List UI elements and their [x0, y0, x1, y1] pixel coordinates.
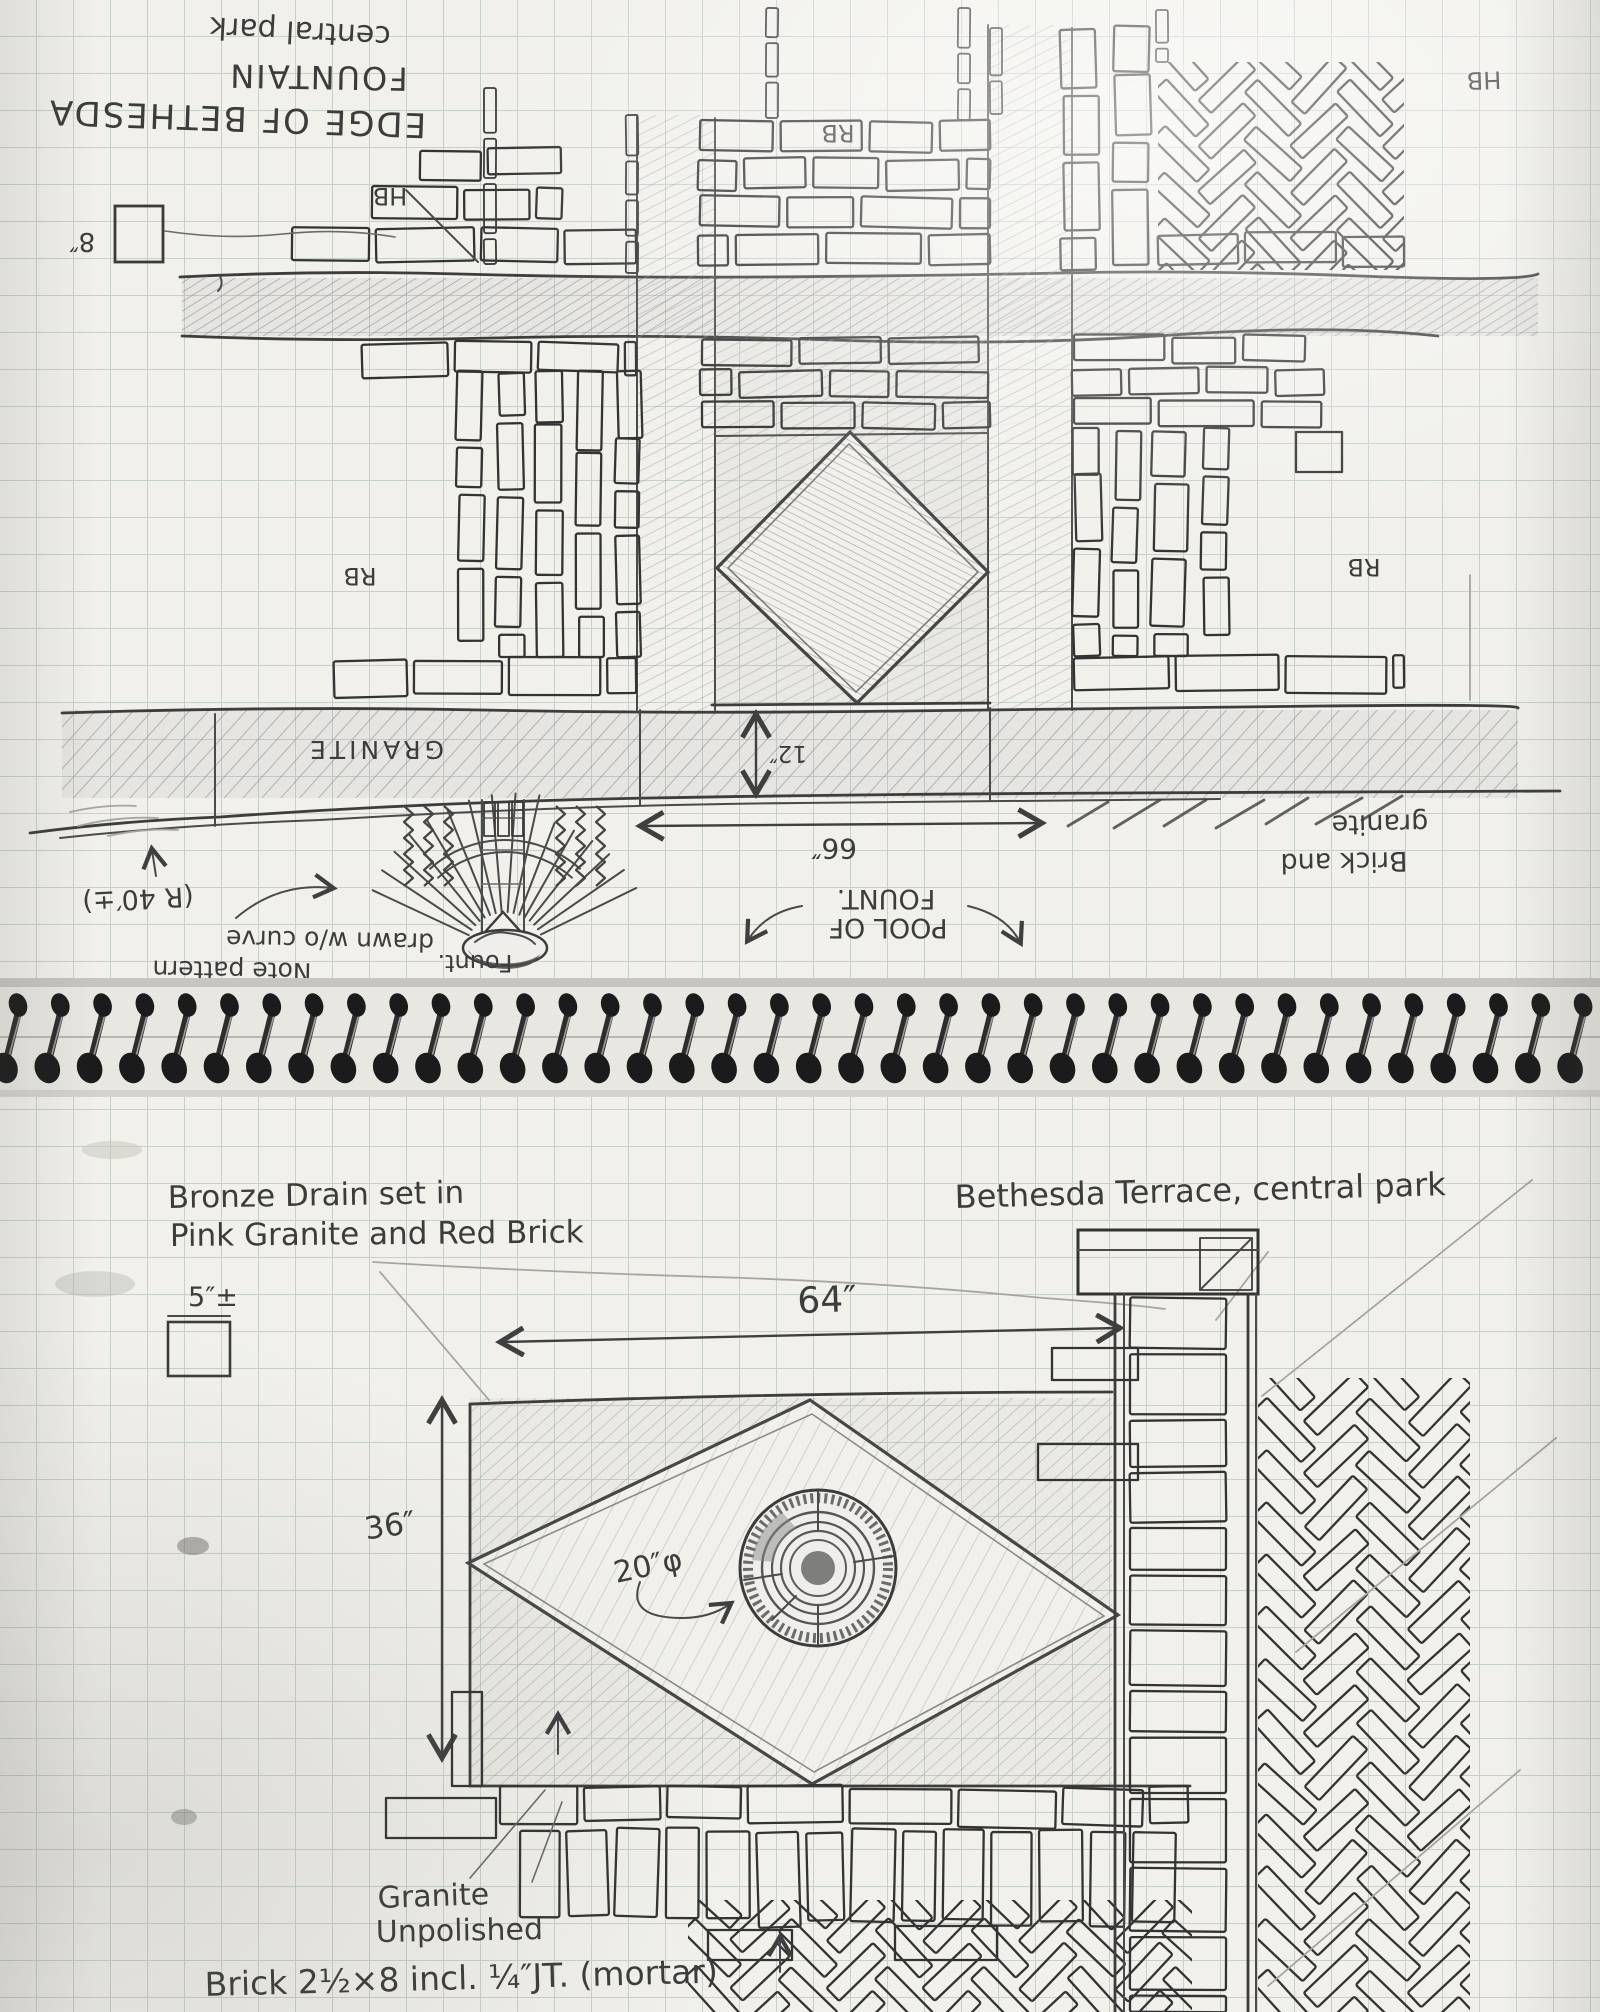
brick — [1199, 195, 1256, 252]
brick — [1460, 1450, 1524, 1513]
brick — [1198, 103, 1255, 159]
label-granite-note-2: Unpolished — [376, 1912, 544, 1950]
arrow-note-pattern — [236, 887, 332, 918]
cross-brick-1 — [1052, 1348, 1138, 1380]
construction-diagonals — [1262, 1180, 1556, 1986]
brick — [1162, 1920, 1222, 1977]
brick — [1513, 1683, 1575, 1748]
ref-square-5in — [168, 1322, 230, 1376]
brick — [1253, 1398, 1316, 1463]
brick — [666, 1828, 699, 1919]
smudge — [177, 1537, 209, 1555]
label-pool-of: POOL OF — [828, 912, 947, 943]
brick — [1512, 1528, 1576, 1592]
brick — [1113, 636, 1138, 656]
zigzag-line — [576, 806, 585, 886]
brick — [1337, 33, 1393, 90]
brick — [1113, 570, 1138, 627]
brick — [766, 43, 778, 77]
granite-strip-right — [988, 25, 1072, 710]
zigzag-line — [556, 806, 565, 886]
brick — [1513, 1943, 1575, 2008]
brick — [1130, 1799, 1226, 1862]
bottom-sketch: Bronze Drain set in Pink Granite and Red… — [55, 1141, 1577, 2012]
brick — [1512, 1736, 1575, 1800]
brick — [1130, 1528, 1226, 1570]
granite-strip-left — [637, 115, 715, 710]
fan-spoke — [410, 835, 480, 921]
bottom-page-edge — [0, 1090, 1600, 1097]
bronze-drain — [740, 1490, 896, 1646]
brick — [1513, 1371, 1575, 1436]
leader-title-diag — [380, 1272, 489, 1400]
brick — [1356, 1451, 1421, 1514]
brick — [1304, 1425, 1369, 1488]
brick — [1113, 143, 1149, 182]
brick — [1151, 431, 1186, 476]
brickfield-stack-left — [455, 371, 642, 658]
sketch-canvas: EDGE OF BETHESDA FOUNTAIN central park 8… — [0, 0, 1600, 2012]
brick — [1156, 10, 1168, 43]
brick — [929, 234, 991, 265]
fan-spoke — [427, 821, 484, 918]
brick — [943, 1829, 984, 1919]
smudge — [171, 1809, 197, 1825]
brick — [1251, 1763, 1316, 1825]
brick — [497, 423, 524, 490]
brick — [1130, 1937, 1226, 1990]
brick — [1513, 1839, 1575, 1904]
brick — [1074, 398, 1151, 424]
label-radius: (R 40′±) — [81, 880, 194, 917]
brick — [1336, 126, 1394, 181]
leader-title — [373, 1262, 1165, 1309]
brick — [1252, 1659, 1317, 1722]
brick — [1111, 508, 1137, 563]
brick — [667, 1786, 741, 1819]
brick — [813, 157, 878, 188]
brick — [1244, 34, 1301, 90]
brick — [960, 198, 990, 228]
brick — [520, 1831, 560, 1917]
brickrow-right-bottom — [1074, 655, 1405, 694]
dim-line-66 — [642, 823, 1040, 826]
brickfield-stack-right — [1072, 428, 1229, 657]
label-dim-66: 66″ — [811, 832, 857, 865]
brick — [615, 438, 640, 484]
brick — [577, 371, 603, 451]
brick — [536, 188, 563, 219]
label-dim-8: 8″ — [69, 226, 96, 256]
dim-line-64 — [502, 1328, 1118, 1342]
brick — [1512, 1580, 1575, 1644]
brick — [536, 510, 563, 575]
smudge — [55, 1271, 135, 1297]
title-pink-granite: Pink Granite and Red Brick — [170, 1214, 584, 1254]
brick — [1162, 1871, 1221, 1929]
brick — [1198, 150, 1256, 205]
brick — [1460, 1555, 1525, 1618]
brick — [1156, 49, 1168, 62]
single-brick — [1296, 432, 1342, 472]
band-tone — [182, 278, 1538, 336]
brick — [756, 1832, 800, 1928]
label-granite-band: GRANITE — [306, 735, 444, 764]
brick — [1304, 1373, 1369, 1436]
brick — [861, 196, 953, 228]
brick — [615, 491, 639, 528]
brick — [496, 497, 523, 569]
brick — [1252, 1502, 1315, 1566]
arrow-pool-right — [968, 906, 1020, 942]
brick — [1153, 126, 1210, 182]
brick — [869, 121, 932, 152]
brick — [1130, 1576, 1226, 1626]
brick — [1429, 171, 1484, 229]
brick — [538, 342, 619, 373]
label-note-line2: drawn w/o curve — [226, 924, 434, 957]
brick — [535, 371, 562, 423]
brick — [1407, 1633, 1472, 1695]
label-pool-fount: FOUNT. — [837, 883, 936, 914]
brick — [1116, 431, 1142, 500]
brick — [1303, 1633, 1368, 1695]
column-rungs — [1130, 1297, 1227, 2012]
brick — [499, 635, 524, 657]
brick — [826, 233, 921, 264]
brick — [484, 139, 496, 178]
column-cap — [1078, 1230, 1258, 1294]
zigzag-line — [404, 806, 413, 886]
brick — [414, 661, 502, 694]
brick — [1172, 338, 1235, 364]
brick — [614, 1828, 659, 1917]
brick — [1075, 473, 1103, 541]
brick — [1513, 1787, 1575, 1852]
label-fount: Fount. — [437, 949, 512, 977]
brick — [1129, 367, 1199, 394]
pole-center-2 — [958, 8, 970, 120]
brick — [1152, 172, 1210, 227]
top-page-edge — [0, 978, 1600, 987]
title-fountain: FOUNTAIN — [228, 56, 408, 97]
brick — [1409, 1372, 1472, 1437]
brick — [1383, 332, 1439, 389]
title-edge-of-bethesda: EDGE OF BETHESDA — [47, 91, 427, 144]
brick — [535, 424, 562, 502]
brick — [1206, 367, 1267, 393]
brick — [1114, 74, 1151, 135]
zigzag-left — [404, 806, 453, 886]
notebook-page: EDGE OF BETHESDA FOUNTAIN central park 8… — [0, 0, 1600, 2012]
band-upper-topline — [180, 272, 1538, 279]
brick — [536, 583, 564, 657]
brick — [484, 184, 496, 233]
brick — [1461, 1657, 1523, 1722]
label-rb-top: RB — [821, 119, 854, 147]
brick — [1408, 1580, 1473, 1643]
brick — [1513, 1892, 1576, 1957]
zigzag-line — [424, 806, 433, 886]
pole-left — [484, 88, 496, 264]
brick — [1243, 334, 1305, 361]
brick — [1382, 57, 1440, 112]
brick — [1252, 1814, 1316, 1878]
brick — [456, 447, 482, 487]
title-bethesda-terrace: Bethesda Terrace, central park — [954, 1165, 1447, 1216]
herringbone-right — [1251, 1345, 1576, 2012]
brick — [748, 1785, 843, 1824]
brick — [1245, 172, 1302, 229]
brick — [850, 1828, 895, 1922]
brick — [940, 120, 991, 151]
brick — [902, 1831, 936, 1921]
brick — [827, 1895, 886, 1954]
label-dim-64: 64″ — [797, 1279, 858, 1322]
border-soldier-course — [520, 1828, 1176, 1928]
brick — [850, 1789, 952, 1824]
smudge — [82, 1141, 142, 1159]
brick — [706, 1831, 749, 1918]
brick — [1073, 624, 1100, 657]
brick — [1290, 103, 1348, 159]
brick — [966, 159, 990, 190]
ref-square-8in — [115, 206, 163, 262]
brick — [1252, 1554, 1316, 1618]
brick — [1130, 1996, 1226, 2012]
brick — [1511, 1633, 1576, 1695]
brick — [488, 147, 562, 174]
brick — [579, 617, 604, 657]
brick — [1461, 1605, 1523, 1670]
brickrow-left-bottom — [334, 657, 637, 698]
pole-right — [1156, 10, 1168, 62]
brick — [1202, 476, 1229, 525]
brick — [1018, 1991, 1078, 2012]
brick — [1285, 656, 1386, 694]
brick — [1210, 1991, 1269, 2012]
brick — [958, 8, 970, 48]
brick — [1149, 1786, 1188, 1823]
brick — [1356, 1658, 1419, 1722]
label-brick-spec: Brick 2½×8 incl. ¼″JT. (mortar) — [204, 1952, 718, 2004]
brick — [1130, 1472, 1227, 1523]
brick — [1130, 1420, 1226, 1467]
brick — [922, 1943, 981, 2001]
brick — [420, 151, 481, 181]
label-hb-right: HB — [1466, 65, 1501, 94]
brick — [1304, 1945, 1369, 2008]
brick — [1130, 1354, 1226, 1414]
brick — [766, 8, 778, 37]
brickrow-left-c — [420, 147, 561, 181]
brick — [826, 1943, 885, 2001]
label-granite-note-1: Granite — [377, 1877, 490, 1916]
brick — [1383, 195, 1439, 252]
leader-8in — [165, 231, 395, 237]
brick — [1356, 1606, 1419, 1670]
brick — [1357, 1710, 1420, 1775]
brick — [495, 577, 521, 627]
brick — [1383, 103, 1440, 160]
label-dim-5: 5″± — [188, 1282, 238, 1313]
brick — [1203, 428, 1229, 470]
brick — [736, 234, 819, 265]
brick — [576, 534, 601, 609]
brick — [1072, 369, 1122, 396]
border-brick-left — [386, 1798, 496, 1838]
brick — [1512, 1424, 1576, 1488]
brick — [1408, 1476, 1472, 1540]
brick — [1460, 1918, 1524, 1981]
label-dim-12: 12″ — [769, 740, 807, 766]
brick — [1304, 1580, 1367, 1644]
zigzag-line — [596, 806, 605, 886]
brick — [730, 1991, 790, 2012]
fan-spoke — [492, 795, 502, 912]
label-rb-right: RB — [1347, 553, 1380, 581]
brick — [1176, 655, 1279, 691]
brickrow-left-mid — [362, 341, 637, 379]
brickfield-rb-right-mid — [1072, 334, 1325, 427]
brick — [958, 54, 970, 84]
brick — [1356, 1502, 1420, 1565]
fan-spoke — [394, 852, 475, 925]
leader-granite-note — [470, 1790, 562, 1882]
brick — [584, 1786, 661, 1821]
brick — [1460, 1398, 1523, 1462]
arrow-pool-left — [748, 906, 802, 940]
brick — [744, 157, 806, 188]
brick — [1408, 1945, 1473, 2008]
brick — [1382, 149, 1439, 205]
title-central-park: central park — [208, 9, 392, 53]
top-sketch: EDGE OF BETHESDA FOUNTAIN central park 8… — [30, 8, 1560, 986]
brick — [1154, 484, 1189, 552]
brick — [1252, 1450, 1315, 1514]
brick — [1262, 401, 1322, 427]
brick — [458, 495, 485, 561]
brick — [1130, 1630, 1227, 1686]
zigzag-right — [556, 806, 605, 886]
brick — [806, 1833, 844, 1921]
label-rb-left: RB — [343, 562, 376, 590]
brick — [1204, 577, 1230, 635]
brick — [766, 83, 778, 118]
brick — [1244, 127, 1302, 182]
brick — [334, 660, 408, 698]
brick — [1356, 1762, 1419, 1826]
brick — [500, 1786, 577, 1824]
brick — [455, 371, 482, 441]
brick — [607, 658, 636, 693]
brick — [1429, 126, 1486, 182]
brick — [1074, 656, 1169, 690]
brick — [1304, 1685, 1369, 1748]
brick — [498, 373, 525, 416]
fan-spoke — [534, 854, 609, 924]
label-material-brick: Brick and — [1280, 845, 1408, 878]
brick — [1513, 1995, 1575, 2012]
brick — [886, 160, 959, 191]
label-dim-36: 36″ — [362, 1505, 418, 1548]
brick — [1130, 1691, 1226, 1732]
brick — [1303, 1789, 1368, 1851]
brick — [1072, 549, 1100, 617]
brick — [1159, 400, 1254, 426]
brick — [787, 197, 853, 227]
brick — [1113, 26, 1149, 72]
brick — [1355, 1919, 1420, 1981]
brick — [682, 1872, 742, 1929]
brick — [1199, 57, 1256, 113]
brick — [1393, 655, 1404, 688]
brick — [1201, 532, 1227, 570]
brick — [1460, 1814, 1524, 1878]
brick — [484, 88, 496, 133]
brick — [1252, 1606, 1316, 1670]
brick — [1356, 1398, 1420, 1461]
brick — [1512, 1476, 1575, 1540]
brick — [1409, 1424, 1472, 1489]
brick — [923, 1990, 981, 2012]
brickrow-left-a — [292, 227, 636, 264]
brick — [1461, 1345, 1523, 1410]
brick — [1461, 1710, 1524, 1775]
brick — [1130, 1297, 1227, 1349]
brick — [1275, 369, 1324, 396]
brick — [1303, 1529, 1369, 1591]
title-bronze-drain: Bronze Drain set in — [168, 1175, 465, 1216]
brick — [1019, 1895, 1077, 1954]
brick — [458, 569, 483, 641]
brick — [1154, 634, 1187, 656]
brick — [1132, 1832, 1176, 1922]
brick — [1073, 428, 1099, 475]
brick — [1460, 1866, 1524, 1929]
brick — [1460, 1502, 1525, 1565]
label-material-granite: granite — [1331, 807, 1428, 840]
label-hb-left: HB — [373, 182, 408, 210]
leader-cap-diag — [1216, 1252, 1268, 1320]
arrow-r40 — [152, 850, 156, 876]
brick — [509, 657, 600, 695]
brick — [1460, 1970, 1524, 2012]
brick — [1356, 1554, 1421, 1617]
brick — [362, 342, 449, 378]
brick — [1112, 190, 1148, 265]
brick — [1150, 559, 1185, 627]
brick — [566, 1830, 609, 1916]
spiral-binding — [0, 978, 1600, 1097]
brick — [576, 453, 602, 526]
brick — [1291, 149, 1348, 206]
brick — [1355, 1815, 1420, 1877]
brickstack-right-top — [1060, 26, 1152, 271]
brick — [1290, 195, 1347, 251]
brick — [1429, 217, 1484, 275]
brick — [958, 89, 970, 120]
brick — [958, 1790, 1056, 1829]
panel-bottomline — [712, 703, 990, 705]
border-rowlock — [500, 1785, 1188, 1829]
pole-center-1 — [766, 8, 778, 118]
brace-line — [406, 190, 478, 262]
brick — [455, 341, 532, 373]
